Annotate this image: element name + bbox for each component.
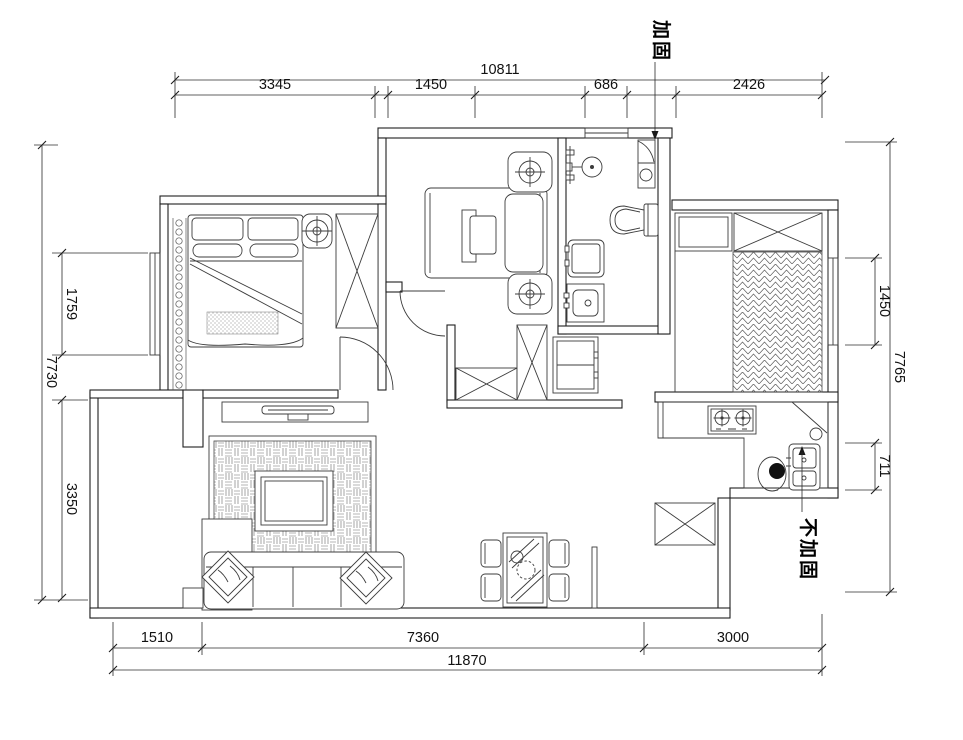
dim-left-seg-2: 3350 bbox=[63, 483, 79, 515]
dining-area bbox=[481, 533, 597, 608]
cushion bbox=[250, 244, 298, 257]
dining-chair bbox=[549, 540, 569, 567]
dim-top-seg-4: 2426 bbox=[733, 77, 765, 93]
window-left bbox=[150, 253, 160, 355]
cabinet-crossed bbox=[655, 503, 715, 545]
dining-chair bbox=[549, 574, 569, 601]
cabinet-crossed bbox=[734, 213, 822, 251]
dim-bottom-seg-1: 1510 bbox=[141, 630, 173, 646]
ceiling-light-icon bbox=[508, 152, 552, 192]
no-reinforce-label: 不加固 bbox=[797, 518, 819, 581]
balcony bbox=[675, 213, 822, 392]
cabinet bbox=[675, 213, 732, 251]
curtain-icon bbox=[173, 218, 186, 390]
dim-bottom-seg-3: 3000 bbox=[717, 630, 749, 646]
refrigerator-icon bbox=[553, 337, 598, 393]
stove-icon bbox=[708, 406, 756, 434]
wall bbox=[658, 138, 670, 334]
tv-stand bbox=[288, 414, 308, 420]
dining-table bbox=[503, 533, 547, 607]
wall bbox=[655, 392, 838, 402]
drain-icon bbox=[810, 428, 822, 440]
pillow bbox=[248, 218, 298, 240]
wall bbox=[447, 400, 622, 408]
person-icon bbox=[758, 457, 786, 491]
wall bbox=[378, 138, 386, 204]
bedroom-2 bbox=[400, 152, 552, 336]
dim-top-seg-2: 1450 bbox=[415, 77, 447, 93]
dim-right-seg-2: 711 bbox=[876, 454, 892, 477]
pillow bbox=[192, 218, 243, 240]
dim-left-seg-1: 1759 bbox=[63, 288, 79, 320]
wall bbox=[558, 326, 668, 334]
wall bbox=[447, 325, 455, 402]
door-bedroom-2 bbox=[400, 291, 445, 336]
coffee-table bbox=[255, 471, 333, 531]
wall bbox=[828, 210, 838, 498]
wall-pillar bbox=[183, 390, 203, 447]
bedroom-1 bbox=[173, 214, 393, 390]
wall bbox=[90, 608, 730, 618]
bed-table bbox=[470, 216, 496, 254]
counter-corner bbox=[792, 402, 827, 433]
annotation-reinforce: 加固 bbox=[650, 19, 672, 140]
dining-chair bbox=[481, 540, 501, 567]
dim-right-overall: 7765 bbox=[891, 351, 907, 383]
dimensions-bottom: 1510 7360 3000 11870 bbox=[109, 614, 826, 676]
corner-shelf bbox=[638, 140, 655, 188]
partition bbox=[592, 547, 597, 608]
blanket bbox=[207, 312, 278, 334]
tv-unit bbox=[222, 402, 368, 422]
ceiling-light-icon bbox=[508, 274, 552, 314]
wall bbox=[160, 204, 168, 392]
wall bbox=[672, 200, 838, 210]
pillow bbox=[505, 194, 543, 272]
single-bed bbox=[425, 188, 547, 278]
dim-bottom-overall: 11870 bbox=[447, 653, 486, 669]
toilet-icon bbox=[610, 204, 658, 236]
floor-plan-page: 10811 3345 1450 686 2426 7730 bbox=[0, 0, 963, 740]
wall bbox=[90, 392, 98, 618]
living-room bbox=[183, 402, 404, 610]
cabinet-crossed bbox=[517, 325, 547, 400]
dim-top-seg-1: 3345 bbox=[259, 77, 291, 93]
dim-right-seg-1: 1450 bbox=[876, 285, 892, 317]
dining-chair bbox=[481, 574, 501, 601]
dim-left-overall: 7730 bbox=[43, 356, 59, 388]
wall bbox=[160, 196, 386, 204]
dimensions-right: 7765 1450 711 bbox=[845, 138, 907, 596]
wall bbox=[90, 390, 183, 398]
double-bed bbox=[188, 215, 303, 347]
washing-machine-icon bbox=[565, 240, 604, 277]
wall bbox=[386, 282, 402, 292]
dimensions-top: 10811 3345 1450 686 2426 bbox=[171, 62, 829, 118]
wardrobe bbox=[336, 214, 378, 328]
bathroom bbox=[564, 140, 658, 322]
hallway bbox=[456, 325, 598, 400]
tiled-floor bbox=[733, 252, 822, 392]
ceiling-light-icon bbox=[302, 214, 332, 248]
dim-bottom-seg-2: 7360 bbox=[407, 630, 439, 646]
side-table bbox=[183, 588, 203, 608]
wall bbox=[718, 498, 730, 610]
reinforce-label: 加固 bbox=[650, 19, 672, 62]
cushion bbox=[193, 244, 242, 257]
dim-top-seg-3: 686 bbox=[594, 77, 618, 93]
wall bbox=[203, 390, 338, 398]
dim-top-overall: 10811 bbox=[480, 62, 519, 78]
shower-icon bbox=[566, 146, 602, 184]
floor-plan-svg: 10811 3345 1450 686 2426 7730 bbox=[0, 0, 963, 740]
bathroom-sink-icon bbox=[564, 284, 604, 322]
cabinet-crossed bbox=[456, 368, 517, 400]
wall bbox=[730, 488, 838, 498]
